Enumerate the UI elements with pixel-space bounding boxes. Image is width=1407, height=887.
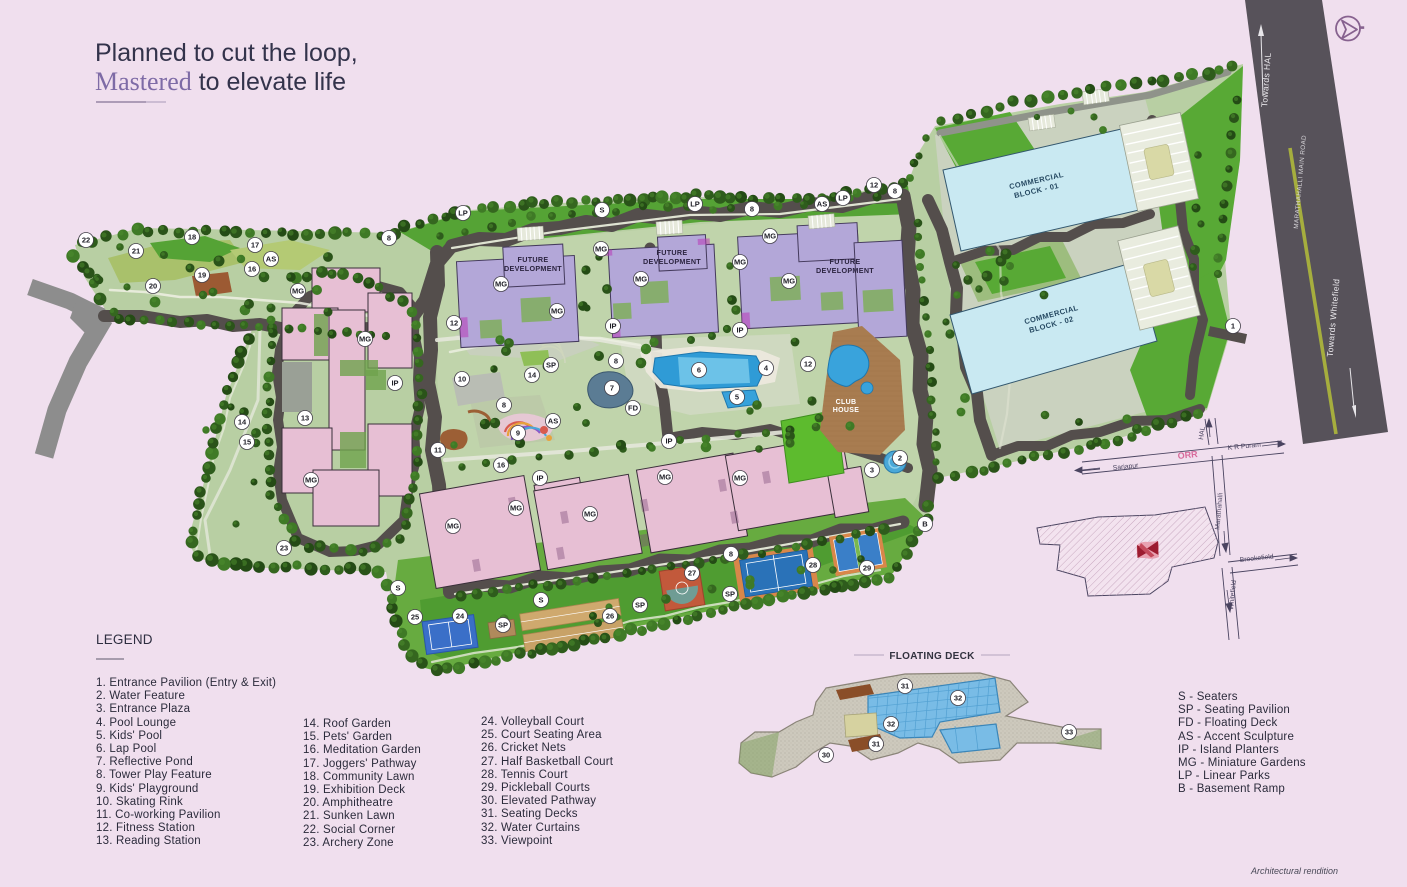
svg-text:8: 8 xyxy=(729,550,733,559)
svg-text:IP: IP xyxy=(736,326,743,335)
svg-text:10: 10 xyxy=(458,375,466,384)
svg-text:12: 12 xyxy=(804,360,812,369)
svg-text:33: 33 xyxy=(1065,728,1073,737)
svg-text:11: 11 xyxy=(434,446,442,455)
svg-text:Mastered to elevate life: Mastered to elevate life xyxy=(95,67,346,96)
svg-text:21. Sunken Lawn: 21. Sunken Lawn xyxy=(303,810,395,822)
svg-text:FUTURE: FUTURE xyxy=(657,248,688,257)
svg-text:MG: MG xyxy=(595,245,607,254)
svg-text:MG: MG xyxy=(783,277,795,286)
svg-text:LP: LP xyxy=(838,194,848,203)
svg-text:20: 20 xyxy=(149,282,157,291)
svg-text:30: 30 xyxy=(822,751,830,760)
svg-text:31: 31 xyxy=(872,740,880,749)
svg-text:FD - Floating Deck: FD - Floating Deck xyxy=(1178,717,1278,729)
svg-text:28. Tennis Court: 28. Tennis Court xyxy=(481,769,568,781)
svg-text:1: 1 xyxy=(1231,322,1235,331)
svg-text:14: 14 xyxy=(238,418,247,427)
svg-text:IP: IP xyxy=(391,379,398,388)
svg-text:MG: MG xyxy=(447,522,459,531)
svg-text:S - Seaters: S - Seaters xyxy=(1178,691,1238,703)
svg-text:5. Kids' Pool: 5. Kids' Pool xyxy=(96,730,162,742)
svg-text:MG: MG xyxy=(551,307,563,316)
svg-text:20. Amphitheatre: 20. Amphitheatre xyxy=(303,797,393,809)
svg-text:19. Exhibition Deck: 19. Exhibition Deck xyxy=(303,784,405,796)
svg-text:MG: MG xyxy=(734,474,746,483)
svg-text:12: 12 xyxy=(450,319,458,328)
svg-text:17: 17 xyxy=(251,241,259,250)
svg-text:23: 23 xyxy=(280,544,288,553)
svg-text:13. Reading Station: 13. Reading Station xyxy=(96,835,201,847)
svg-text:16: 16 xyxy=(248,265,256,274)
svg-text:11. Co-working Pavilion: 11. Co-working Pavilion xyxy=(96,809,221,821)
svg-text:15: 15 xyxy=(243,438,251,447)
svg-text:AS: AS xyxy=(548,417,558,426)
svg-text:29: 29 xyxy=(863,564,871,573)
svg-text:9: 9 xyxy=(516,429,520,438)
svg-text:AS - Accent Sculpture: AS - Accent Sculpture xyxy=(1178,731,1294,743)
svg-text:HOUSE: HOUSE xyxy=(833,407,859,414)
svg-text:8: 8 xyxy=(750,205,754,214)
svg-text:12: 12 xyxy=(870,181,878,190)
svg-text:LP: LP xyxy=(458,209,468,218)
svg-text:MG: MG xyxy=(764,232,776,241)
svg-text:18: 18 xyxy=(188,233,196,242)
svg-text:24. Volleyball Court: 24. Volleyball Court xyxy=(481,716,585,728)
svg-text:3: 3 xyxy=(870,466,874,475)
svg-text:16. Meditation Garden: 16. Meditation Garden xyxy=(303,744,421,756)
svg-text:S: S xyxy=(395,584,400,593)
svg-text:8: 8 xyxy=(893,187,897,196)
svg-text:IP: IP xyxy=(609,322,616,331)
svg-text:FUTURE: FUTURE xyxy=(830,257,861,266)
svg-text:6: 6 xyxy=(697,366,701,375)
svg-text:17. Joggers' Pathway: 17. Joggers' Pathway xyxy=(303,758,417,770)
svg-text:IP - Island Planters: IP - Island Planters xyxy=(1178,744,1279,756)
svg-text:31: 31 xyxy=(901,682,909,691)
svg-text:8: 8 xyxy=(502,401,506,410)
svg-text:Planned to cut the loop,: Planned to cut the loop, xyxy=(95,39,358,67)
svg-text:14. Roof Garden: 14. Roof Garden xyxy=(303,718,391,730)
svg-text:S: S xyxy=(599,206,604,215)
svg-text:MG: MG xyxy=(510,504,522,513)
svg-text:Architectural rendition: Architectural rendition xyxy=(1250,866,1338,876)
svg-text:MG: MG xyxy=(495,280,507,289)
svg-text:32: 32 xyxy=(887,720,895,729)
svg-text:22: 22 xyxy=(82,236,90,245)
svg-text:B: B xyxy=(922,520,928,529)
svg-text:28: 28 xyxy=(809,561,817,570)
svg-text:7. Reflective Pond: 7. Reflective Pond xyxy=(96,756,193,768)
svg-text:14: 14 xyxy=(528,371,537,380)
svg-text:IP: IP xyxy=(665,437,672,446)
svg-text:33. Viewpoint: 33. Viewpoint xyxy=(481,835,553,847)
svg-text:32. Water Curtains: 32. Water Curtains xyxy=(481,822,580,834)
svg-text:27. Half Basketball Court: 27. Half Basketball Court xyxy=(481,756,614,768)
svg-text:MG: MG xyxy=(734,258,746,267)
svg-text:9. Kids' Playground: 9. Kids' Playground xyxy=(96,783,199,795)
svg-text:7: 7 xyxy=(610,384,614,393)
svg-text:SP: SP xyxy=(546,361,556,370)
svg-text:AS: AS xyxy=(266,255,276,264)
svg-text:AS: AS xyxy=(817,200,827,209)
svg-text:SP - Seating Pavilion: SP - Seating Pavilion xyxy=(1178,704,1290,716)
svg-text:LP - Linear Parks: LP - Linear Parks xyxy=(1178,770,1270,782)
svg-text:24: 24 xyxy=(456,612,465,621)
svg-text:DEVELOPMENT: DEVELOPMENT xyxy=(643,257,701,266)
svg-text:MG: MG xyxy=(359,335,371,344)
svg-text:B - Basement Ramp: B - Basement Ramp xyxy=(1178,783,1285,795)
svg-text:SP: SP xyxy=(635,601,645,610)
svg-text:25: 25 xyxy=(411,613,419,622)
svg-text:25. Court Seating Area: 25. Court Seating Area xyxy=(481,729,602,741)
svg-text:8. Tower Play Feature: 8. Tower Play Feature xyxy=(96,769,212,781)
svg-text:FD: FD xyxy=(628,404,639,413)
svg-text:LP: LP xyxy=(690,200,700,209)
svg-text:27: 27 xyxy=(688,569,696,578)
svg-text:S: S xyxy=(538,596,543,605)
svg-text:19: 19 xyxy=(198,271,206,280)
svg-text:DEVELOPMENT: DEVELOPMENT xyxy=(504,264,562,273)
svg-text:FUTURE: FUTURE xyxy=(518,255,549,264)
svg-text:IP: IP xyxy=(536,474,543,483)
svg-text:15. Pets' Garden: 15. Pets' Garden xyxy=(303,731,392,743)
svg-text:2. Water Feature: 2. Water Feature xyxy=(96,690,185,702)
svg-text:ORR: ORR xyxy=(1177,449,1198,461)
svg-text:MG: MG xyxy=(635,275,647,284)
svg-text:DEVELOPMENT: DEVELOPMENT xyxy=(816,266,874,275)
svg-text:MG: MG xyxy=(305,476,317,485)
svg-text:2: 2 xyxy=(898,454,902,463)
svg-text:10. Skating Rink: 10. Skating Rink xyxy=(96,796,183,808)
svg-text:MG - Miniature Gardens: MG - Miniature Gardens xyxy=(1178,757,1306,769)
svg-text:8: 8 xyxy=(387,234,391,243)
svg-text:26. Cricket Nets: 26. Cricket Nets xyxy=(481,742,566,754)
svg-text:CLUB: CLUB xyxy=(836,399,857,406)
svg-text:MG: MG xyxy=(659,473,671,482)
svg-text:30. Elevated Pathway: 30. Elevated Pathway xyxy=(481,795,596,807)
svg-text:29. Pickleball Courts: 29. Pickleball Courts xyxy=(481,782,590,794)
svg-text:16: 16 xyxy=(497,461,505,470)
svg-text:32: 32 xyxy=(954,694,962,703)
svg-text:FLOATING DECK: FLOATING DECK xyxy=(889,651,975,662)
svg-text:31. Seating Decks: 31. Seating Decks xyxy=(481,808,578,820)
svg-text:22. Social Corner: 22. Social Corner xyxy=(303,824,395,836)
svg-text:SP: SP xyxy=(725,590,735,599)
svg-text:8: 8 xyxy=(614,357,618,366)
svg-text:MG: MG xyxy=(292,287,304,296)
svg-text:1. Entrance Pavilion (Entry &: 1. Entrance Pavilion (Entry & Exit) xyxy=(96,677,276,689)
svg-text:MG: MG xyxy=(584,510,596,519)
svg-text:SP: SP xyxy=(498,621,508,630)
svg-text:5: 5 xyxy=(735,393,739,402)
svg-text:18. Community Lawn: 18. Community Lawn xyxy=(303,771,415,783)
svg-text:6. Lap Pool: 6. Lap Pool xyxy=(96,743,156,755)
svg-text:21: 21 xyxy=(132,247,140,256)
svg-text:13: 13 xyxy=(301,414,309,423)
svg-text:3. Entrance Plaza: 3. Entrance Plaza xyxy=(96,703,191,715)
svg-text:26: 26 xyxy=(606,612,614,621)
svg-text:4. Pool Lounge: 4. Pool Lounge xyxy=(96,717,176,729)
svg-text:LEGEND: LEGEND xyxy=(96,632,153,647)
svg-text:23. Archery Zone: 23. Archery Zone xyxy=(303,837,394,849)
svg-text:12. Fitness Station: 12. Fitness Station xyxy=(96,822,195,834)
